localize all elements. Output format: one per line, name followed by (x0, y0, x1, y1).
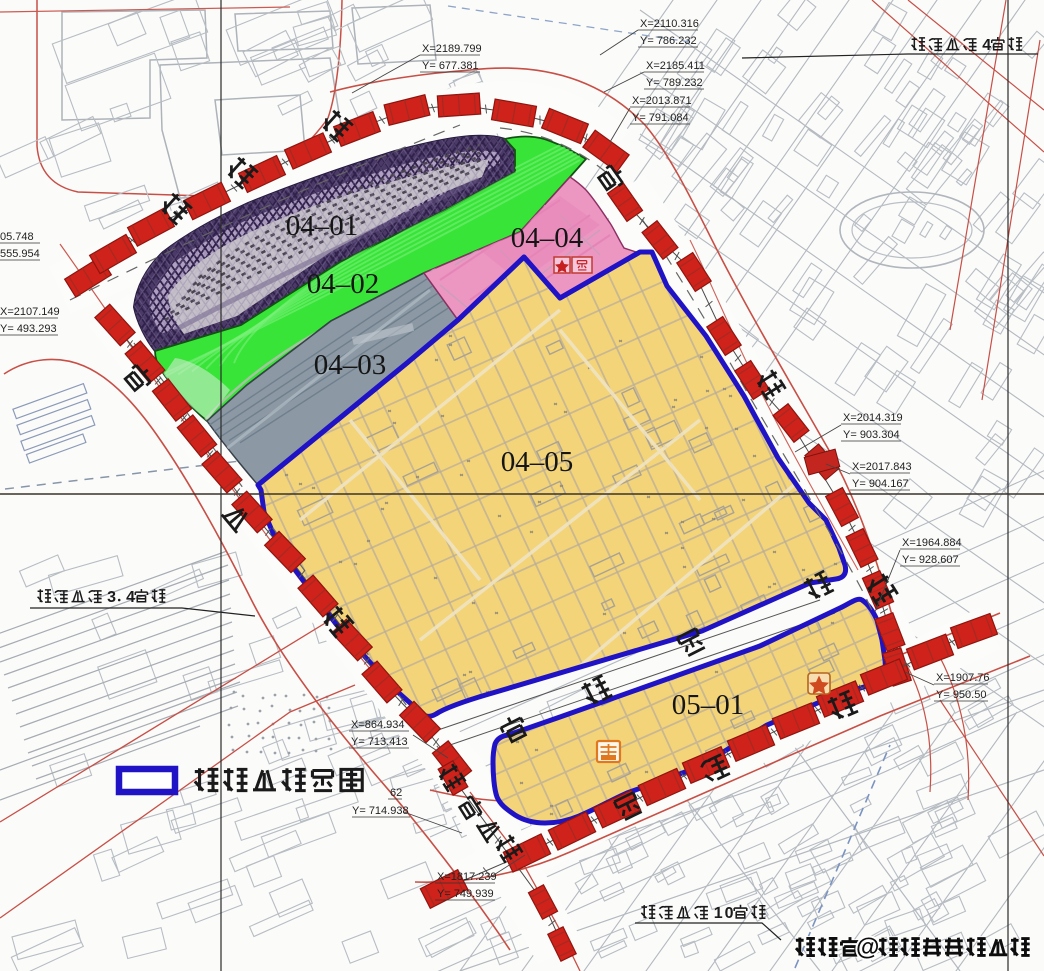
svg-text:3: 3 (107, 589, 116, 606)
svg-text:4: 4 (126, 589, 135, 606)
svg-text:Y= 749.939: Y= 749.939 (437, 888, 494, 900)
svg-text:04–04: 04–04 (511, 222, 584, 254)
svg-text:62: 62 (390, 787, 402, 799)
svg-text:X=1907.76: X=1907.76 (936, 672, 990, 684)
svg-text:@: @ (856, 934, 879, 961)
svg-text:X=1964.884: X=1964.884 (902, 537, 962, 549)
svg-text:Y= 786.232: Y= 786.232 (640, 35, 697, 47)
svg-text:05–01: 05–01 (672, 689, 745, 721)
svg-text:Y= 714.938: Y= 714.938 (352, 805, 409, 817)
svg-text:X=2107.149: X=2107.149 (0, 306, 60, 318)
svg-text:X=864.934: X=864.934 (351, 719, 405, 731)
svg-text:Y= 789.232: Y= 789.232 (646, 77, 703, 89)
svg-text:X=2013.871: X=2013.871 (632, 95, 692, 107)
svg-text:Y= 950.50: Y= 950.50 (936, 689, 986, 701)
svg-text:X=2189.799: X=2189.799 (422, 43, 482, 55)
svg-text:04–02: 04–02 (307, 268, 380, 300)
svg-text:555.954: 555.954 (0, 248, 40, 260)
svg-text:X=2014.319: X=2014.319 (843, 412, 903, 424)
svg-text:X=2110.316: X=2110.316 (640, 18, 699, 30)
svg-text:Y= 904.167: Y= 904.167 (852, 478, 909, 490)
svg-text:05.748: 05.748 (0, 231, 34, 243)
svg-text:Y= 791.084: Y= 791.084 (632, 112, 689, 124)
svg-text:X=1817.239: X=1817.239 (437, 871, 497, 883)
svg-text:Y= 677.381: Y= 677.381 (422, 60, 479, 72)
svg-text:Y= 713.413: Y= 713.413 (351, 736, 408, 748)
svg-text:Y= 493.293: Y= 493.293 (0, 323, 57, 335)
svg-text:Y= 928.607: Y= 928.607 (902, 554, 959, 566)
svg-text:0: 0 (725, 905, 734, 922)
svg-text:04–01: 04–01 (286, 210, 359, 242)
svg-text:04–05: 04–05 (501, 446, 574, 478)
svg-text:X=2185.411: X=2185.411 (646, 60, 705, 72)
svg-text:1: 1 (714, 905, 723, 922)
svg-text:04–03: 04–03 (314, 349, 387, 381)
svg-text:4: 4 (982, 37, 991, 54)
svg-text:Y= 903.304: Y= 903.304 (843, 429, 900, 441)
svg-text:X=2017.843: X=2017.843 (852, 461, 912, 473)
